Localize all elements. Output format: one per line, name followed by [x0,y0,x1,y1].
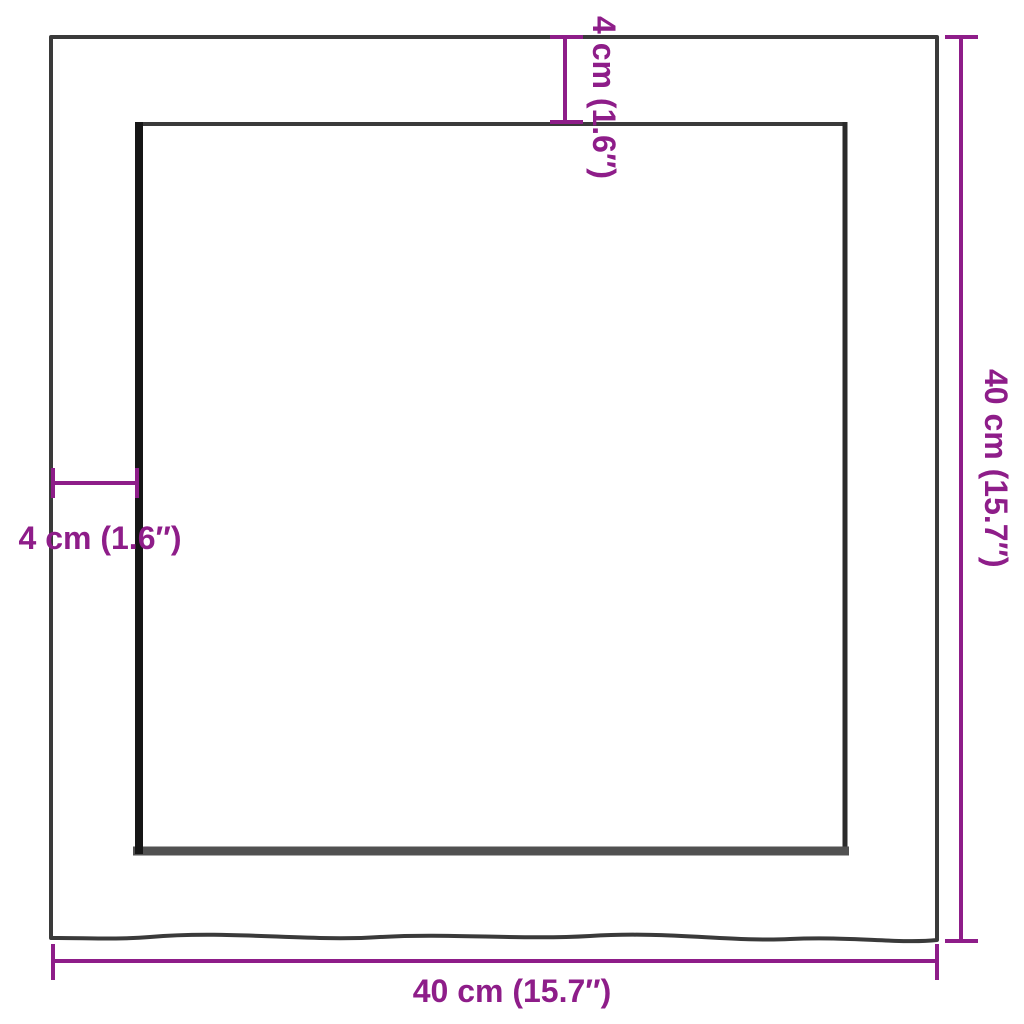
top-offset-dimension [550,37,583,122]
overall-width-label: 40 cm (15.7″) [352,974,672,1009]
overall-height-dimension [945,37,978,941]
left-offset-label: 4 cm (1.6″) [10,521,190,556]
outer-square-outline [51,37,937,941]
top-offset-label: 4 cm (1.6″) [586,16,621,179]
dimension-diagram: 4 cm (1.6″) 4 cm (1.6″) 40 cm (15.7″) 40… [0,0,1024,1024]
left-offset-dimension [53,468,137,498]
panel-drawing [0,0,1024,1024]
overall-height-label: 40 cm (15.7″) [978,369,1013,568]
